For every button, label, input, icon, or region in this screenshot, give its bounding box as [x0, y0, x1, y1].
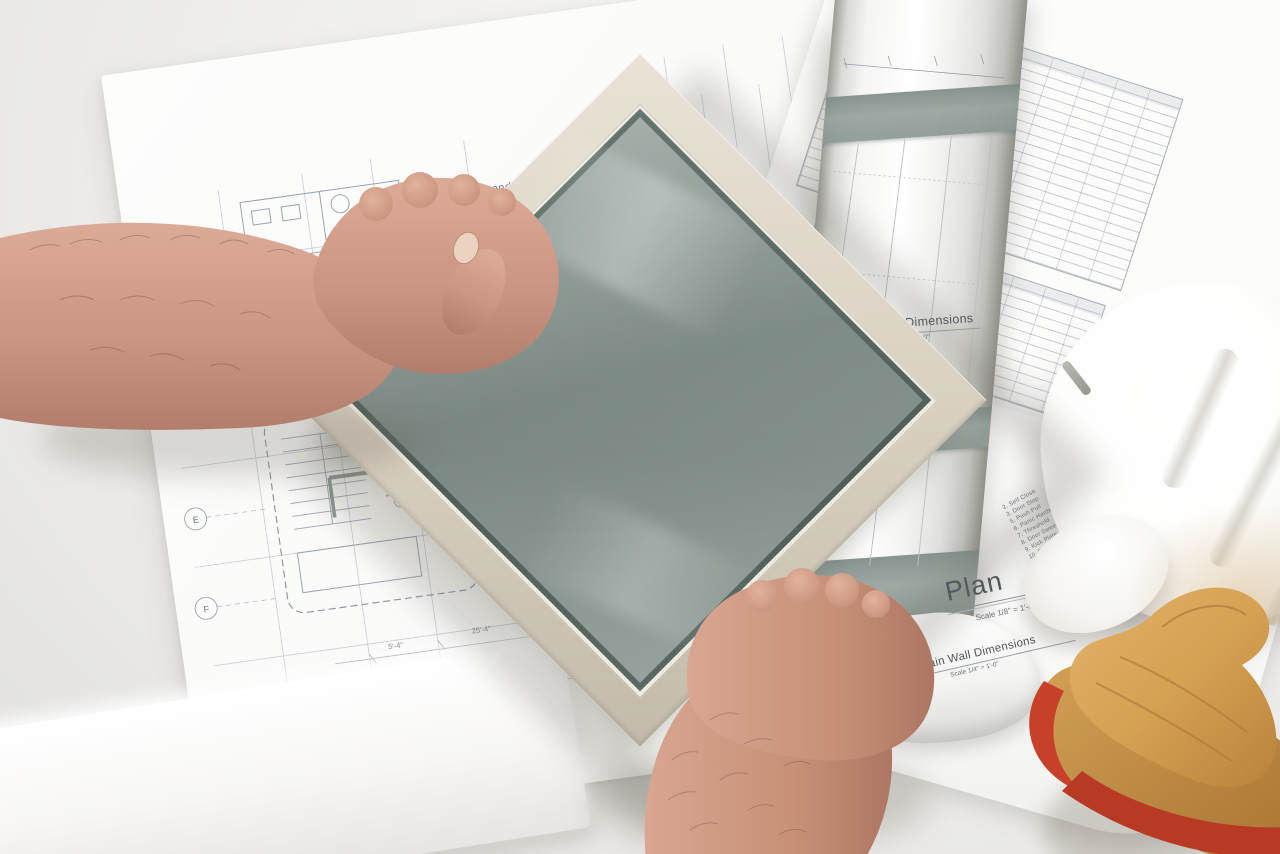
photo-scene: 1 Hour Fire Rated Stair Enclosure See Sh…	[0, 0, 1280, 854]
arms-and-hands	[0, 0, 1280, 854]
right-hand	[687, 575, 934, 760]
